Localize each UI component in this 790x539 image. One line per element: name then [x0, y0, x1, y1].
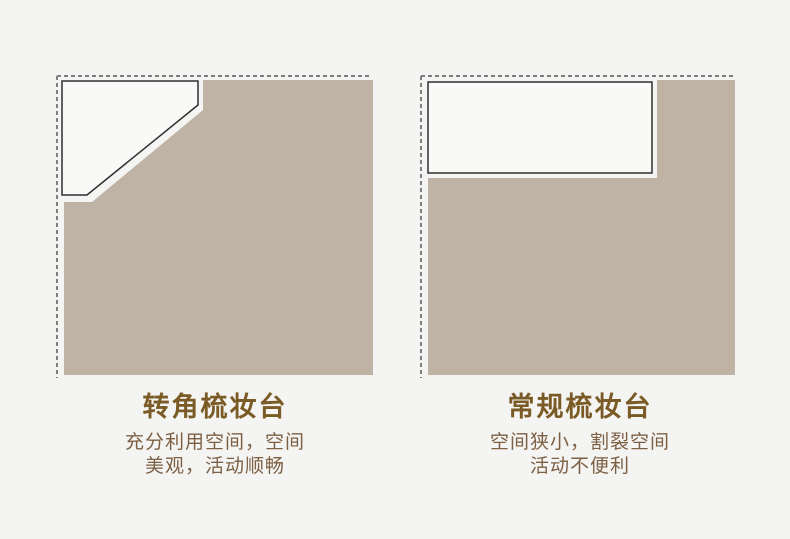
left-panel: 转角梳妆台 充分利用空间，空间 美观，活动顺畅 — [50, 70, 380, 479]
right-panel: 常规梳妆台 空间狭小，割裂空间 活动不便利 — [415, 70, 745, 479]
left-description-line-1: 充分利用空间，空间 — [125, 432, 305, 453]
right-description-line-1: 空间狭小，割裂空间 — [490, 432, 670, 453]
regular-layout-diagram — [415, 70, 745, 382]
right-title: 常规梳妆台 — [415, 385, 745, 424]
left-title: 转角梳妆台 — [50, 385, 380, 424]
right-description: 空间狭小，割裂空间 活动不便利 — [415, 431, 745, 479]
comparison-infographic: 转角梳妆台 充分利用空间，空间 美观，活动顺畅 常规梳妆台 空间狭小，割裂空间 … — [0, 0, 790, 539]
regular-dressing-table-shape — [428, 82, 652, 173]
left-description-line-2: 美观，活动顺畅 — [145, 456, 285, 477]
right-description-line-2: 活动不便利 — [530, 456, 630, 477]
corner-layout-diagram — [50, 70, 380, 382]
left-description: 充分利用空间，空间 美观，活动顺畅 — [50, 431, 380, 479]
